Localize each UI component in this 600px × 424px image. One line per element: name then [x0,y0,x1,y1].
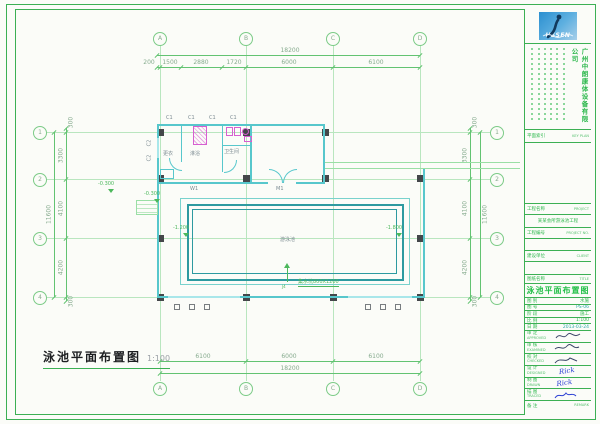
terrace-line [325,168,520,169]
sign-label-en: DESIGNED [527,372,545,376]
dim-line [66,128,67,301]
wall [157,182,268,184]
contact-text-strips [527,48,569,125]
bench [160,169,174,179]
signature [546,331,589,341]
grid-bubble: 3 [33,232,47,246]
sign-row-designed: 设 计DESIGNED Rick [525,366,591,378]
level-label: -0.300 [144,191,160,197]
sheet-name-row: 图纸名称 TITLE [525,275,591,284]
grid-bubble: D [413,382,427,396]
dim-label: 11600 [46,200,53,230]
sheet-title-row: 泳池平面布置图 [525,284,591,298]
grid-bubble: 3 [490,232,504,246]
dim-line [54,132,55,297]
drain-label: J4 [282,284,286,289]
dim-label: 6100 [188,353,218,360]
meta-value: 2013-03-24 [563,325,589,330]
room-label: 卫生间 [224,148,239,155]
drawing-sheet: A B C D A B C D 1 2 3 4 1 2 3 4 18200 20… [0,0,600,424]
dim-label: 6100 [361,353,391,360]
meta-label: 比 例 [527,318,537,324]
client-label: 建设单位 [527,253,545,259]
urinal-fixture [244,136,252,142]
grid-bubble: C [326,32,340,46]
key-plan-row: 平面索引 KEY PLAN [525,130,591,143]
meta-value: 水施 [580,298,589,304]
level-triangle [183,233,189,237]
key-plan-label: 平面索引 [527,133,545,139]
level-triangle [108,189,114,193]
dim-label: 300 [68,287,75,317]
window-strip [168,296,240,298]
project-no-value-row [525,239,591,251]
dim-line [160,373,420,374]
wall [296,182,325,184]
pool-label: 游泳池 [280,236,295,243]
shower-fixture [193,126,207,145]
meta-value: 1:100 [576,318,589,323]
door-label: M1 [276,186,284,192]
logo-row: USSEN [525,9,591,44]
title-block: USSEN 广州中朗康体设备有限公司 平面索引 KEY PLAN 工程名称 PR… [524,9,591,415]
level-label: -1.200 [173,225,189,231]
signature [544,355,589,365]
drain-arrow [284,263,290,268]
key-plan-box [525,143,591,204]
grid-bubble: C [326,382,340,396]
wall [423,168,425,298]
grid-bubble: B [239,382,253,396]
remark-label: 备 注 [527,403,537,409]
dim-label: 6000 [274,353,304,360]
meta-row-stage: 阶 段 施工 [525,311,591,318]
project-label: 工程名称 [527,206,545,212]
level-triangle [396,233,402,237]
meta-label: 阶 段 [527,311,537,317]
window-label: C1 [209,115,216,121]
sign-label-en: APPROVED [527,337,546,341]
side-window-label: C2 [146,155,152,162]
grid-bubble: D [413,32,427,46]
sign-row-approved: 审 定APPROVED [525,331,591,343]
dim-label: 6100 [361,59,391,66]
plan-area: A B C D A B C D 1 2 3 4 1 2 3 4 18200 20… [0,0,600,424]
grid-bubble: 2 [33,173,47,187]
meta-label: 图 号 [527,305,537,311]
signature: Rick [540,378,589,390]
wall [157,124,325,126]
level-label: -1.800 [386,225,402,231]
grid-line-A [160,44,161,381]
level-triangle [154,199,160,203]
dim-line [157,67,420,68]
grid-bubble: 4 [490,291,504,305]
sheet-name-label-en: TITLE [580,277,589,281]
partition-wall [250,124,252,182]
grid-line-D [420,44,421,381]
company-name: 广州中朗康体设备有限公司 [569,48,589,125]
grid-bubble: 2 [490,173,504,187]
dim-label: 18200 [275,47,305,54]
wall [323,124,325,184]
signature [541,390,589,400]
sheet-title: 泳池平面布置图 [527,285,590,296]
client-label-en: CLIENT [577,254,589,258]
window-strip [348,296,412,298]
room-label: 更衣 [163,150,173,157]
meta-row-date: 日 期 2013-03-24 [525,324,591,331]
sheet-name-label: 图纸名称 [527,276,545,282]
sign-label-en: TRACED [527,395,541,399]
sign-row-drawn: 制 图DRAWN Rick [525,378,591,390]
window-label: C1 [166,115,173,121]
sign-row-traced: 描 图TRACED [525,389,591,401]
project-no-label-en: PROJECT NO. [566,231,589,235]
partition-wall [222,124,223,172]
wall-type-label: W1 [190,186,198,192]
window-label: C1 [230,115,237,121]
project-name-row: 某某会所游泳池工程 [525,215,591,228]
key-plan-label-en: KEY PLAN [572,134,589,138]
project-name: 某某会所游泳池工程 [538,218,579,224]
dim-label: 11600 [482,200,489,230]
level-label: -0.300 [98,181,114,187]
signature: Rick [545,366,589,378]
project-no-label: 工程编号 [527,230,545,236]
dim-line [160,361,420,362]
remark-label-en: REMARK [574,403,589,407]
meta-row-category: 图 别 水施 [525,298,591,305]
dim-line [470,128,471,301]
client-row: 建设单位 CLIENT [525,251,591,262]
dim-label: 3300 [58,141,65,171]
window-strip [157,138,159,158]
sump-note: 集水坑800X1200 [298,278,339,287]
company-info: 广州中朗康体设备有限公司 [525,44,591,130]
grid-bubble: A [153,382,167,396]
sink-fixture [242,128,249,135]
drain-leader-line [287,268,288,282]
double-door-arc [283,169,297,183]
grid-line-1 [44,132,491,133]
drawing-caption: 泳池平面布置图1:100 [43,346,170,369]
drawing-caption-text: 泳池平面布置图 [43,350,141,364]
sign-row-examined: 审 核EXAMINED [525,343,591,355]
sign-label-en: CHECKED [527,360,544,364]
sign-label-en: EXAMINED [527,349,546,353]
meta-row-number: 图 号 PS-06 [525,305,591,312]
partition-wall [181,124,182,162]
dim-label: 4100 [462,194,469,224]
meta-value: PS-06 [576,305,589,310]
drawing-caption-scale: 1:100 [147,354,170,363]
toilet-fixture [234,127,241,136]
grid-bubble: 1 [33,126,47,140]
grid-bubble: 1 [490,126,504,140]
dim-label: 6000 [274,59,304,66]
side-window-label: C2 [146,140,152,147]
company-logo: USSEN [539,12,577,40]
dim-label: 4100 [58,194,65,224]
window-label: C1 [188,115,195,121]
dim-label: 300 [68,108,75,138]
sign-row-checked: 校 对CHECKED [525,354,591,366]
dim-label: 4200 [462,253,469,283]
grid-bubble: B [239,32,253,46]
meta-row-scale: 比 例 1:100 [525,318,591,325]
dim-line [157,55,420,56]
dim-label: 18200 [275,365,305,372]
meta-value: 施工 [580,311,589,317]
terrace-line [325,162,520,163]
sign-label-en: DRAWN [527,384,540,388]
project-no-row: 工程编号 PROJECT NO. [525,228,591,239]
double-door-arc [269,169,283,183]
remark-row: 备 注 REMARK [525,401,591,419]
swimmer-icon [539,12,577,40]
meta-label: 日 期 [527,324,537,330]
signature [546,343,589,353]
dim-label: 300 [472,287,479,317]
dim-label: 4200 [58,253,65,283]
dim-label: 2880 [186,59,216,66]
meta-label: 图 别 [527,298,537,304]
project-label-en: PROJECT [574,207,589,211]
project-row: 工程名称 PROJECT [525,204,591,215]
toilet-fixture [226,127,233,136]
client-value-row [525,262,591,275]
grid-bubble: A [153,32,167,46]
partition-wall [222,145,250,146]
room-label: 淋浴 [190,150,200,157]
door-arc [224,160,237,173]
grid-bubble: 4 [33,291,47,305]
dim-label: 3300 [462,141,469,171]
